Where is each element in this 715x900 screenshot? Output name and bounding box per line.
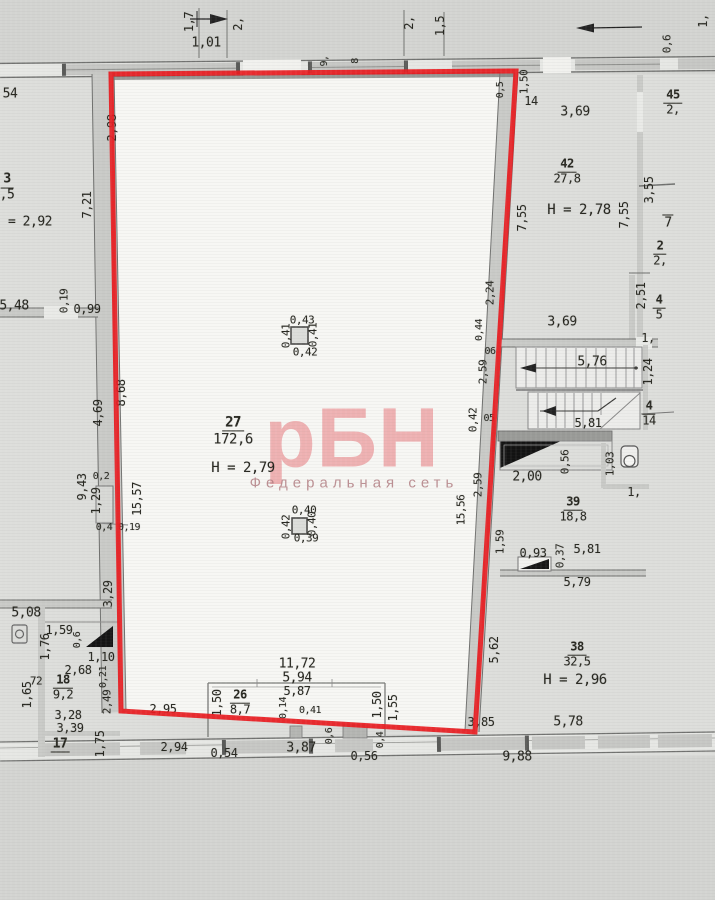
dim-label: 0,44 bbox=[475, 319, 485, 341]
dim-label: 0,4 bbox=[376, 732, 386, 749]
dim-label: 2,59 bbox=[473, 473, 484, 498]
room-number: 26 bbox=[230, 689, 249, 704]
dim-label: 3,69 bbox=[560, 106, 589, 119]
dim-label: 0,6 bbox=[73, 632, 83, 649]
room-17-label: 17 bbox=[51, 738, 70, 753]
dim-label: 1,59 bbox=[495, 530, 506, 555]
dim-label: 1,10 bbox=[88, 651, 115, 663]
room-area: 172,6 bbox=[213, 432, 253, 448]
dim-label: 0,6 bbox=[325, 728, 335, 745]
dim-label: 2,95 bbox=[150, 703, 177, 715]
dim-label: 5,81 bbox=[574, 543, 601, 555]
dim-label: 5,48 bbox=[0, 300, 29, 313]
room-area: ,5 bbox=[0, 189, 14, 204]
dim-label: 05 bbox=[483, 414, 494, 424]
dim-label: 0,54 bbox=[211, 747, 238, 759]
dim-label: 414 bbox=[642, 400, 655, 429]
dim-label: 0,93 bbox=[520, 547, 547, 559]
dim-label: 2, bbox=[403, 16, 415, 29]
dim-label: 9, bbox=[320, 55, 330, 66]
room-area: 14 bbox=[642, 415, 655, 429]
dim-label: 15,56 bbox=[456, 495, 467, 526]
room-3-label: 3,5 bbox=[0, 173, 14, 204]
dim-label: 1,01 bbox=[191, 37, 220, 50]
dim-label: 1, bbox=[627, 486, 640, 498]
dim-label: 4,69 bbox=[92, 400, 104, 427]
dim-label: 1, bbox=[641, 332, 654, 344]
room-number: 18 bbox=[53, 674, 72, 689]
dim-label: 1,76 bbox=[39, 634, 51, 661]
dim-label: 0,37 bbox=[555, 544, 566, 569]
dim-label: 0,2 bbox=[93, 472, 110, 482]
dim-label: 2,98 bbox=[106, 115, 118, 142]
room-42-label: 4227,8 bbox=[554, 158, 581, 187]
dim-label: 5,79 bbox=[564, 576, 591, 588]
room-area: 2, bbox=[666, 104, 679, 118]
dim-label: 1,03 bbox=[605, 452, 616, 477]
dim-label: 1,29 bbox=[90, 488, 102, 515]
room-number: 4 bbox=[643, 400, 656, 415]
dim-label: 7,55 bbox=[516, 205, 528, 232]
room-26-label: 268,7 bbox=[230, 689, 250, 718]
room-area: 18,8 bbox=[560, 511, 587, 525]
dim-label: 0,5 bbox=[496, 82, 506, 99]
dim-label: 2,00 bbox=[512, 471, 541, 484]
dimension-labels-layer: 1,71,012,2,1,51,0,69,8543,5= 2,927,215,4… bbox=[0, 0, 715, 900]
room-18-label: 189,2 bbox=[53, 674, 73, 703]
dim-label: 7,21 bbox=[81, 192, 93, 219]
room-number: 38 bbox=[567, 641, 586, 656]
dim-label: = 2,92 bbox=[8, 216, 52, 229]
dim-label: 54 bbox=[3, 88, 18, 101]
dim-label: 7 bbox=[662, 215, 673, 230]
dim-label: 2,59 bbox=[478, 360, 489, 385]
room-45-label: 452, bbox=[663, 89, 682, 118]
dim-label: 0,39 bbox=[294, 533, 319, 544]
dim-label: 1,50 bbox=[211, 690, 223, 717]
dim-label: 45 bbox=[653, 294, 666, 323]
dim-label: 9,43 bbox=[76, 474, 88, 501]
dim-label: 0,19 bbox=[59, 289, 70, 314]
dim-label: 0,41 bbox=[308, 323, 319, 348]
room-39-label: 3918,8 bbox=[560, 496, 587, 525]
dim-label: 1,75 bbox=[94, 731, 106, 758]
dim-label: 8 bbox=[351, 58, 361, 64]
room-number: 27 bbox=[222, 414, 244, 431]
dim-label: 5,08 bbox=[11, 607, 40, 620]
dim-label: 2,94 bbox=[161, 741, 188, 753]
room-number: 2 bbox=[654, 240, 667, 255]
floorplan-scan: рБН Федеральная сеть 1,71,012,2,1,51,0,6… bbox=[0, 0, 715, 900]
dim-label: 3,85 bbox=[468, 716, 495, 728]
dim-label: 22, bbox=[653, 240, 666, 269]
dim-label: 1,5 bbox=[434, 16, 446, 36]
dim-label: 0,41 bbox=[299, 706, 321, 716]
dim-label: 0,56 bbox=[560, 450, 571, 475]
dim-label: 1, bbox=[697, 14, 709, 27]
dim-label: 0,42 bbox=[281, 515, 292, 540]
dim-label: 5,87 bbox=[284, 685, 311, 697]
dim-label: 8,68 bbox=[115, 380, 127, 407]
room-number: 39 bbox=[563, 496, 582, 511]
room-38-height: H = 2,96 bbox=[543, 673, 606, 687]
dim-label: 3,55 bbox=[643, 177, 655, 204]
room-area: 2, bbox=[653, 255, 666, 269]
dim-label: 0,6 bbox=[662, 35, 673, 53]
room-number: 4 bbox=[653, 294, 666, 309]
room-area: 5 bbox=[656, 309, 663, 323]
dim-label: 5,78 bbox=[553, 716, 582, 729]
dim-label: 1,7 bbox=[183, 12, 195, 32]
dim-label: 1,65 bbox=[21, 682, 33, 709]
dim-label: 0,21 bbox=[99, 666, 109, 688]
dim-label: 2,49 bbox=[102, 690, 113, 715]
dim-label: 5,62 bbox=[488, 637, 500, 664]
dim-label: 2,24 bbox=[485, 281, 496, 306]
dim-label: 1,55 bbox=[387, 695, 399, 722]
dim-label: 2,51 bbox=[635, 283, 647, 310]
dim-label: 3,87 bbox=[286, 742, 315, 755]
dim-label: 3,39 bbox=[57, 722, 84, 734]
dim-label: 14 bbox=[524, 95, 537, 107]
dim-label: 5,76 bbox=[577, 356, 606, 369]
dim-label: 0,42 bbox=[293, 347, 318, 358]
room-area: 8,7 bbox=[230, 704, 250, 718]
room-27-label: 27172,6 bbox=[213, 414, 253, 447]
dim-label: 3,29 bbox=[102, 581, 114, 608]
room-27-height: H = 2,79 bbox=[211, 461, 274, 475]
dim-label: 5,81 bbox=[575, 417, 602, 429]
room-area: 9,2 bbox=[53, 689, 73, 703]
room-area: 32,5 bbox=[564, 656, 591, 670]
dim-label: 0,19 bbox=[118, 523, 140, 533]
dim-label: 7,55 bbox=[618, 202, 630, 229]
dim-label: 1,50 bbox=[519, 70, 530, 95]
room-number: 42 bbox=[557, 158, 576, 173]
dim-label: 0,56 bbox=[351, 750, 378, 762]
dim-label: 0,99 bbox=[74, 303, 101, 315]
dim-label: 11,72 bbox=[279, 658, 316, 671]
dim-label: 0,14 bbox=[279, 697, 289, 719]
room-area: 27,8 bbox=[554, 173, 581, 187]
dim-label: 0,41 bbox=[281, 324, 292, 349]
dim-label: 15,57 bbox=[131, 482, 143, 516]
dim-label: 1,24 bbox=[642, 359, 654, 386]
dim-label: 3,28 bbox=[55, 709, 82, 721]
room-number: 3 bbox=[0, 173, 13, 189]
dim-label: 06 bbox=[484, 347, 495, 357]
dim-label: 1,50 bbox=[371, 692, 383, 719]
dim-label: 5,94 bbox=[282, 672, 311, 685]
dim-label: 0,42 bbox=[468, 408, 479, 433]
dim-label: 3,69 bbox=[547, 316, 576, 329]
dim-label: 9,88 bbox=[502, 751, 531, 764]
room-number: 45 bbox=[663, 89, 682, 104]
room-38-label: 3832,5 bbox=[564, 641, 591, 670]
dim-label: 2, bbox=[232, 17, 244, 30]
room-42-height: H = 2,78 bbox=[547, 203, 610, 217]
dim-label: 0,4 bbox=[96, 523, 113, 533]
